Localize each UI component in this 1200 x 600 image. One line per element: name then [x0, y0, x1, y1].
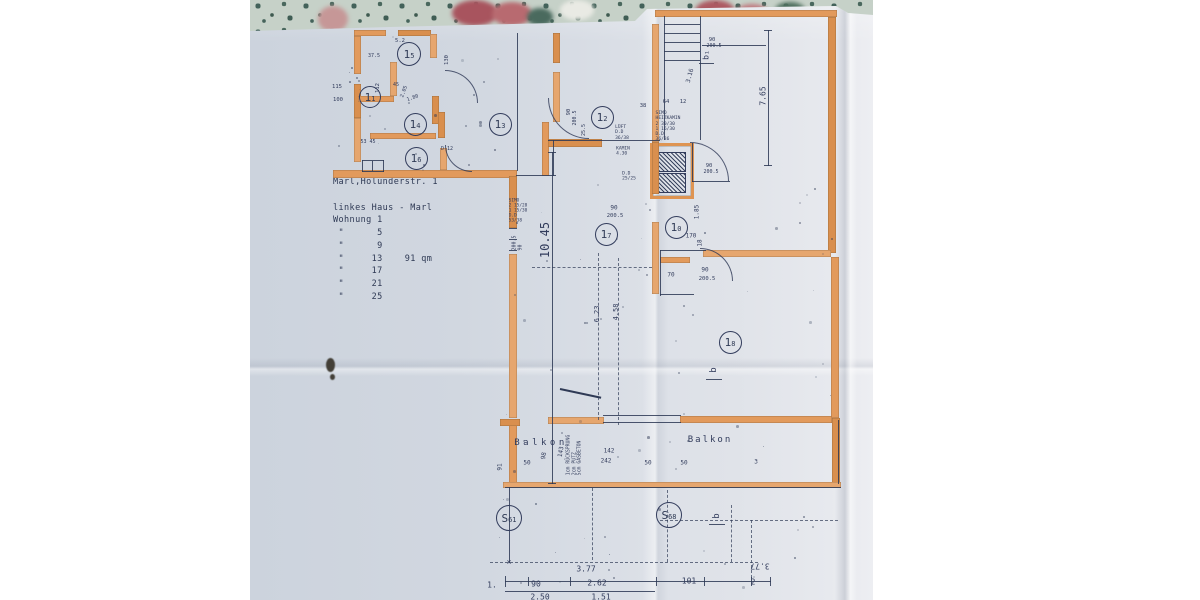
plan-label: 2.62: [587, 578, 606, 587]
photocopy-speck: [516, 222, 518, 224]
photocopy-speck: [669, 441, 671, 443]
plan-label: b: [709, 367, 719, 372]
plan-line: [700, 16, 701, 140]
plan-label: b₁: [701, 50, 710, 60]
plan-line: [505, 591, 655, 592]
photocopy-speck: [461, 59, 464, 62]
plan-line: [664, 24, 700, 25]
photocopy-speck: [797, 529, 799, 531]
plan-label: 143: [558, 446, 567, 458]
plan-label: LÜFT D.D 36/38: [615, 125, 629, 141]
plan-label: D.D 25/25: [622, 172, 636, 183]
photocopy-speck: [609, 554, 610, 555]
photocopy-speck: [546, 260, 548, 262]
plan-label: 200.5: [706, 44, 721, 50]
plan-line: [362, 160, 384, 161]
plan-label: 90: [610, 206, 617, 213]
plan-label: 25.5: [582, 124, 588, 136]
photocopy-speck: [799, 202, 801, 204]
photocopy-speck: [622, 306, 624, 308]
photocopy-speck: [736, 425, 739, 428]
plan-line: [548, 140, 660, 141]
plan-label: 50: [680, 461, 687, 468]
photocopy-speck: [586, 322, 588, 324]
room-badge-14: 14: [404, 113, 427, 136]
plan-label: 6.23: [593, 306, 601, 323]
plan-label: 50: [644, 461, 651, 468]
plan-label: 38: [640, 103, 647, 109]
plan-line: [699, 63, 714, 64]
photocopy-speck: [683, 413, 685, 415]
photocopy-speck: [584, 538, 585, 539]
photocopy-speck: [497, 58, 499, 60]
wall-segment: [509, 254, 517, 418]
photocopy-speck: [550, 369, 552, 371]
photocopy-speck: [822, 363, 824, 365]
photocopy-speck: [338, 145, 340, 147]
plan-label: 53 45: [360, 140, 375, 146]
plan-line: [362, 171, 384, 172]
plan-label: 200.5: [573, 110, 579, 125]
plan-line: [664, 42, 700, 43]
plan-label: 91: [498, 463, 505, 470]
plan-label: 142: [604, 449, 615, 456]
photocopy-speck: [369, 115, 371, 117]
plan-label: 50: [523, 461, 530, 468]
wall-segment: [680, 416, 832, 423]
photocopy-speck: [806, 194, 808, 196]
room-badge-13: 13: [489, 113, 512, 136]
dashed-line: [490, 562, 758, 563]
plan-label: 2: [751, 577, 756, 586]
plan-line: [764, 165, 772, 166]
plan-label: SIMO HEIZKAMIN 2 30/30 1 16/30 D.D 36/36: [656, 111, 681, 143]
pink-flower: [318, 6, 348, 32]
photocopy-speck: [675, 468, 677, 470]
photocopy-speck: [351, 67, 353, 69]
chimney-flue: [658, 152, 686, 172]
wall-segment: [660, 257, 690, 263]
photocopy-speck: [675, 340, 677, 342]
photocopy-speck: [613, 577, 615, 579]
photocopy-speck: [520, 582, 522, 584]
photocopy-speck: [775, 227, 778, 230]
photocopy-speck: [422, 169, 424, 171]
plan-line: [664, 60, 700, 61]
plan-line: [660, 294, 694, 295]
photocopy-speck: [494, 149, 496, 151]
room-badge-15: 15: [397, 42, 421, 66]
address-block: Marl,Holunderstr. 1 linkes Haus - Marl W…: [333, 176, 438, 304]
plan-label: 200.5: [699, 276, 716, 282]
plan-label: 98: [541, 452, 549, 460]
plan-line: [768, 30, 769, 166]
dashed-line: [731, 505, 732, 562]
plan-label: KAMIN 4.30: [616, 147, 630, 158]
photocopy-speck: [415, 153, 417, 155]
plan-label: SIMO 2 15/28 1 15/30 D.D 53/38: [509, 198, 528, 223]
photocopy-speck: [535, 503, 537, 505]
photocopy-speck: [513, 470, 516, 473]
photocopy-speck: [683, 305, 685, 307]
photocopy-speck: [434, 114, 437, 117]
plan-label: D 12: [441, 147, 453, 153]
wall-segment: [831, 257, 839, 418]
plan-line: [362, 160, 363, 172]
photocopy-speck: [561, 432, 563, 434]
photocopy-speck: [503, 499, 504, 500]
plan-label: ×: [507, 557, 512, 566]
plan-label: 3.16: [686, 68, 696, 84]
plan-line: [603, 415, 681, 416]
photocopy-speck: [799, 222, 801, 224]
photocopy-speck: [423, 164, 425, 166]
wall-segment: [398, 30, 431, 36]
dashed-line: [598, 253, 599, 420]
plan-line: [764, 30, 772, 31]
photocopy-speck: [794, 557, 796, 559]
floorplan-paper: Marl,Holunderstr. 1 linkes Haus - Marl W…: [250, 0, 873, 600]
plan-label: 7.65: [758, 86, 767, 105]
plan-label: 90: [701, 268, 708, 275]
paper-hole-mark: [330, 374, 335, 380]
plan-line: [505, 581, 771, 582]
plan-label: 200.5: [607, 213, 624, 219]
photocopy-speck: [358, 80, 360, 82]
photocopy-speck: [812, 526, 814, 528]
photocopy-speck: [658, 508, 661, 511]
plan-label: 130: [444, 55, 450, 65]
plan-line: [548, 483, 556, 484]
wall-segment: [354, 36, 361, 74]
plan-label: b: [712, 513, 722, 518]
plan-line: [505, 487, 841, 488]
red-flower: [492, 2, 532, 26]
plan-label: 37.5: [368, 54, 380, 60]
wall-segment: [655, 10, 837, 17]
plan-line: [383, 160, 384, 172]
wall-segment: [542, 122, 549, 176]
photocopy-speck: [617, 456, 619, 458]
photocopy-speck: [604, 536, 606, 538]
photocopy-speck: [579, 420, 582, 423]
photocopy-speck: [499, 537, 500, 538]
plan-label: 1.85: [695, 205, 702, 219]
wall-segment: [500, 419, 520, 426]
photocopy-speck: [384, 128, 386, 130]
dashed-line: [618, 258, 619, 425]
photocopy-speck: [645, 203, 647, 205]
wall-segment: [652, 142, 659, 194]
plan-label: 1.: [487, 580, 497, 589]
plan-line: [664, 51, 700, 52]
plan-label: 18: [698, 239, 705, 246]
room-badge-16: 16: [405, 147, 428, 170]
plan-label: 10.45: [539, 222, 553, 258]
plan-label: Balkon: [688, 435, 733, 445]
wall-segment: [370, 133, 436, 139]
photocopy-speck: [692, 314, 694, 316]
plan-label: 3.77: [750, 561, 769, 570]
plan-label: 1.51: [591, 592, 610, 600]
plan-line: [372, 161, 373, 171]
plan-label: 200.5 90: [512, 235, 524, 250]
floorplan-drawing: Marl,Holunderstr. 1 linkes Haus - Marl W…: [250, 0, 873, 600]
plan-line: [603, 422, 681, 423]
chimney-flue: [658, 173, 686, 193]
plan-line: [509, 228, 517, 229]
plan-line: [706, 379, 722, 380]
photocopy-speck: [814, 188, 816, 190]
plan-label: 70: [667, 273, 674, 280]
photocopy-speck: [506, 414, 507, 415]
pen-stray-mark: [560, 388, 601, 399]
plan-line: [553, 140, 554, 176]
wall-segment: [390, 62, 397, 96]
wall-segment: [430, 34, 437, 58]
photocopy-speck: [506, 498, 509, 501]
photocopy-speck: [392, 36, 394, 38]
photocopy-speck: [555, 552, 556, 553]
plan-line: [660, 250, 661, 296]
photocopy-speck: [822, 253, 824, 255]
plan-line: [692, 181, 730, 182]
photocopy-speck: [703, 550, 705, 552]
wall-segment: [509, 420, 517, 484]
photocopy-speck: [479, 121, 482, 124]
door-swing-arc: [445, 70, 478, 103]
photocopy-speck: [803, 516, 805, 518]
photocopy-speck: [704, 232, 706, 234]
photocopy-speck: [408, 102, 410, 104]
photocopy-speck: [465, 125, 467, 127]
photocopy-speck: [763, 446, 764, 447]
screenshot-root: { "photo": { "description": "photo of an…: [0, 0, 1200, 600]
photocopy-speck: [649, 209, 651, 211]
photocopy-speck: [678, 372, 680, 374]
plan-label: 3: [754, 460, 758, 467]
photocopy-speck: [349, 81, 351, 83]
room-badge-17: 17: [595, 223, 618, 246]
dashed-line: [532, 267, 652, 268]
photocopy-speck: [523, 319, 526, 322]
plan-label: 2.50: [530, 592, 549, 600]
plan-label: 242: [601, 459, 612, 466]
wall-segment: [652, 222, 659, 294]
plan-label: 12: [680, 99, 687, 105]
plan-label: 1cm RÜCKSPRUNG 2cm PUTZ 5cm GASBETON: [567, 435, 584, 475]
photocopy-speck: [813, 290, 814, 291]
photocopy-speck: [638, 449, 641, 452]
dashed-line: [660, 520, 838, 521]
plan-label: 45: [393, 83, 399, 89]
photocopy-speck: [483, 81, 485, 83]
wall-segment: [548, 417, 604, 424]
photocopy-speck: [378, 143, 379, 144]
plan-label: 101: [682, 576, 696, 585]
plan-label: 115: [332, 84, 342, 90]
plan-line: [709, 524, 725, 525]
plan-label: 200.5: [703, 170, 718, 176]
photocopy-speck: [616, 238, 618, 240]
photocopy-speck: [600, 318, 602, 320]
room-badge-18: 18: [719, 331, 742, 354]
photocopy-speck: [646, 274, 648, 276]
room-badge-S68: S68: [656, 502, 682, 528]
plan-label: 3.77: [576, 564, 595, 573]
photocopy-speck: [815, 376, 817, 378]
room-badge-11: 11: [359, 86, 381, 108]
white-flower: [560, 0, 594, 20]
photocopy-speck: [608, 569, 610, 571]
plan-line: [664, 33, 700, 34]
plan-label: 64: [663, 99, 670, 105]
photocopy-speck: [809, 321, 812, 324]
room-badge-S61: S61: [496, 505, 522, 531]
plan-line: [516, 175, 556, 176]
photocopy-speck: [747, 291, 748, 292]
room-badge-10: 10: [665, 216, 688, 239]
plan-line: [552, 152, 553, 484]
wall-segment: [438, 112, 445, 138]
plan-label: 100: [333, 97, 343, 103]
wall-segment: [828, 17, 836, 253]
photocopy-speck: [541, 212, 542, 213]
photocopy-speck: [597, 184, 599, 186]
wall-segment: [333, 170, 517, 178]
room-badge-12: 12: [591, 106, 614, 129]
photocopy-speck: [724, 563, 726, 565]
photocopy-speck: [742, 586, 745, 589]
paper-hole-mark: [326, 358, 335, 372]
plan-label: 90: [531, 579, 541, 588]
photocopy-speck: [359, 89, 360, 90]
plan-line: [517, 33, 518, 171]
dashed-line: [592, 488, 593, 560]
plan-line: [548, 152, 556, 153]
photocopy-speck: [580, 259, 581, 260]
plan-line: [838, 420, 839, 484]
photocopy-speck: [559, 581, 561, 583]
photocopy-speck: [641, 238, 642, 239]
wall-segment: [553, 33, 560, 63]
photocopy-speck: [479, 124, 482, 127]
plan-label: 4.58: [612, 304, 620, 321]
photocopy-speck: [638, 269, 640, 271]
floorplan-photo: Marl,Holunderstr. 1 linkes Haus - Marl W…: [250, 0, 873, 600]
photocopy-speck: [349, 72, 350, 73]
plan-label: 170: [686, 234, 697, 241]
photocopy-speck: [647, 436, 650, 439]
